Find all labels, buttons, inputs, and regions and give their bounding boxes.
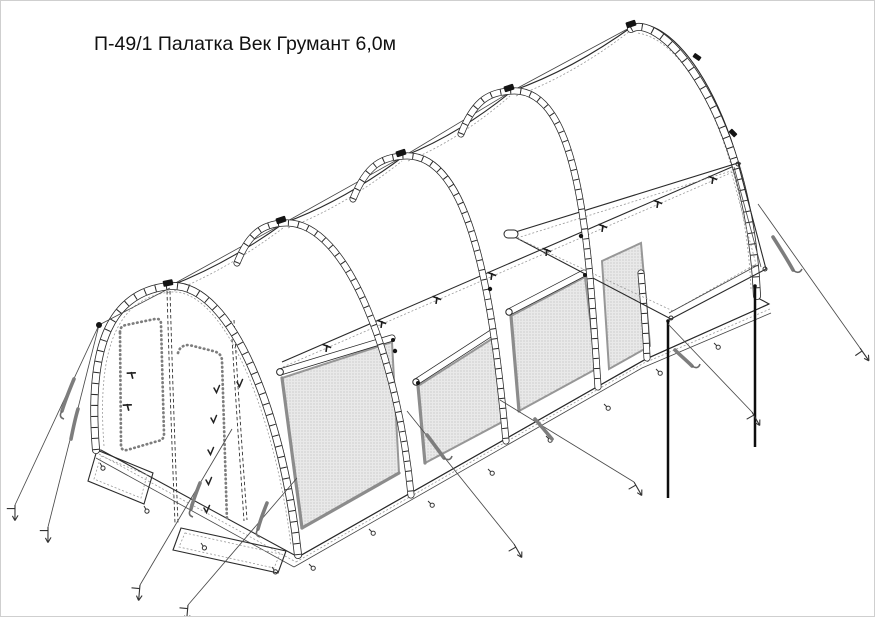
drawing-title: П-49/1 Палатка Век Грумант 6,0м: [94, 33, 396, 55]
front-wall: [103, 291, 291, 546]
door-toggles: [204, 380, 243, 513]
mesh-panel-1: [282, 342, 399, 528]
awning-pole-1: [666, 319, 670, 498]
front-flap: [173, 528, 286, 573]
front-door: [178, 345, 227, 521]
front-door-zipper: [167, 291, 247, 523]
front-wall-clips: [123, 371, 138, 412]
tent-technical-drawing: П-49/1 Палатка Век Грумант 6,0м: [1, 1, 875, 617]
front-window: [120, 319, 164, 450]
awning-pole-2: [753, 284, 757, 447]
left-flap: [88, 450, 153, 504]
mesh-panel-3: [511, 277, 596, 411]
drawing-page: П-49/1 Палатка Век Грумант 6,0м: [0, 0, 875, 617]
